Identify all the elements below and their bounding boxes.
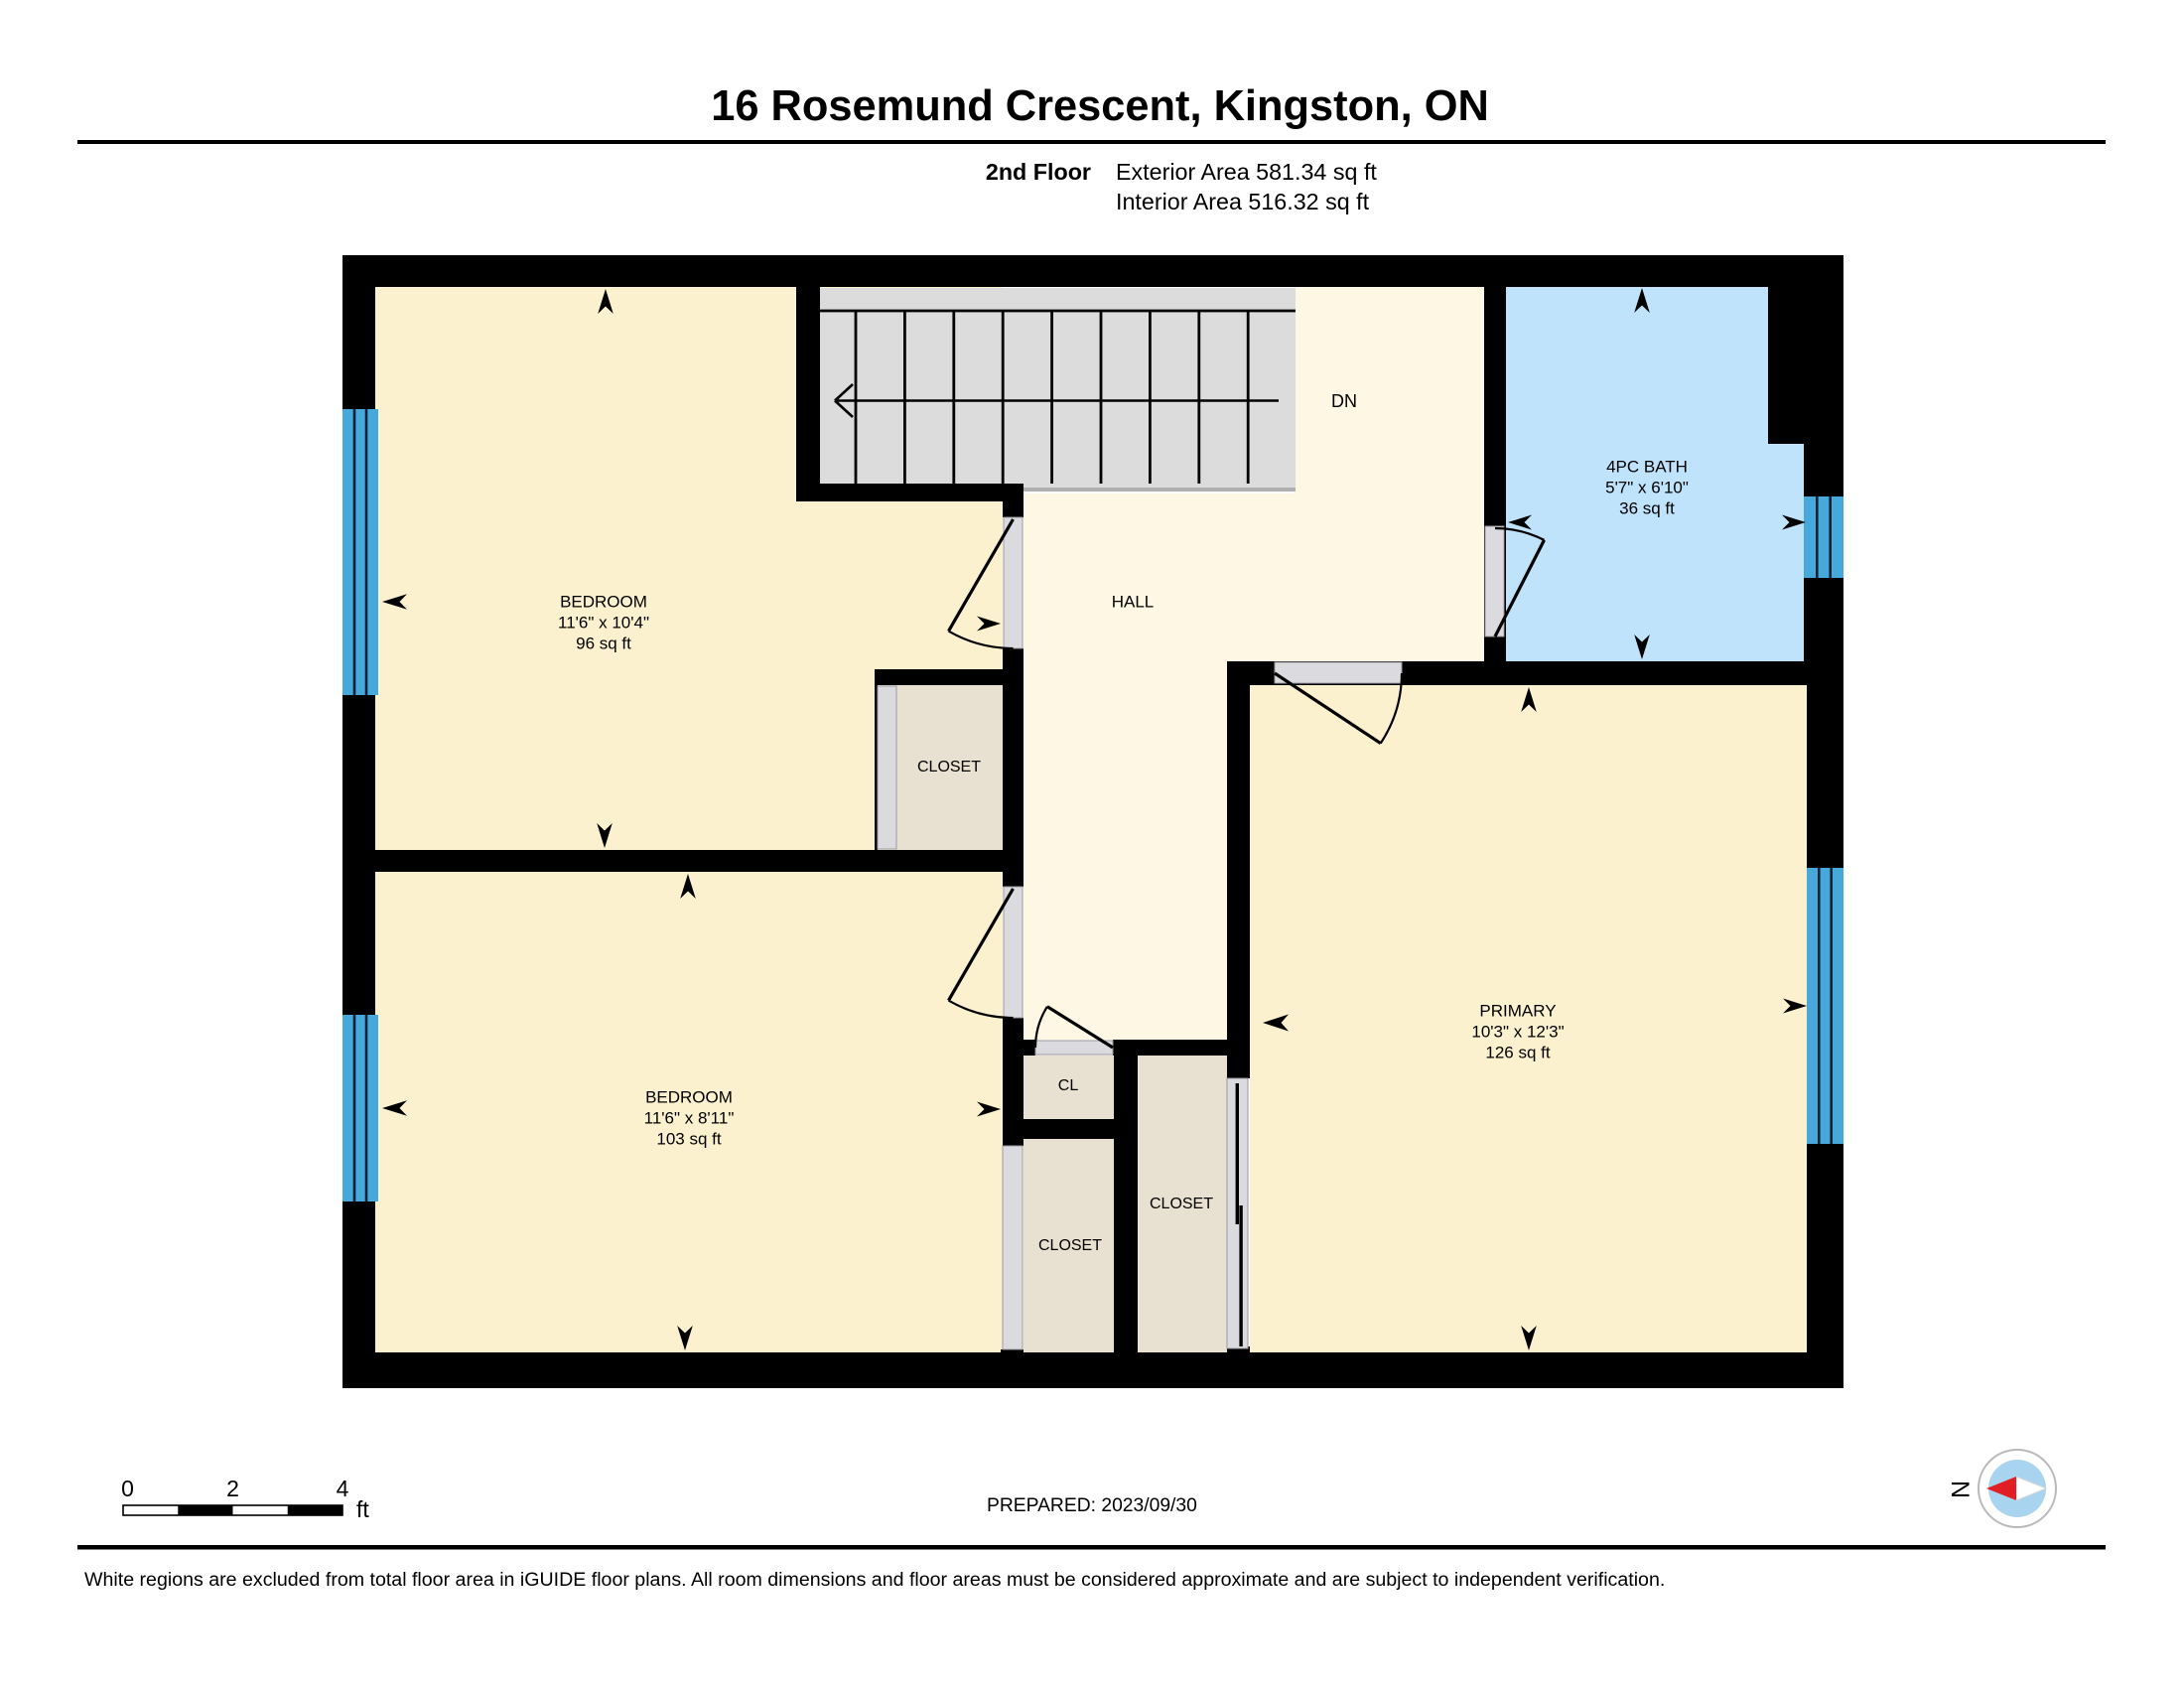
svg-text:CLOSET: CLOSET [1150, 1196, 1213, 1212]
svg-text:CLOSET: CLOSET [1038, 1237, 1102, 1254]
svg-text:CL: CL [1058, 1077, 1079, 1094]
svg-text:PREPARED: 2023/09/30: PREPARED: 2023/09/30 [987, 1495, 1197, 1516]
svg-text:16 Rosemund Crescent, Kingston: 16 Rosemund Crescent, Kingston, ON [711, 82, 1489, 130]
svg-text:2nd Floor: 2nd Floor [986, 159, 1091, 185]
svg-text:DN: DN [1331, 391, 1357, 411]
svg-text:36 sq ft: 36 sq ft [1619, 498, 1675, 517]
svg-text:BEDROOM: BEDROOM [560, 593, 647, 612]
svg-text:96 sq ft: 96 sq ft [576, 634, 631, 652]
svg-text:2: 2 [226, 1476, 239, 1501]
svg-text:126 sq ft: 126 sq ft [1485, 1043, 1550, 1061]
svg-text:PRIMARY: PRIMARY [1479, 1002, 1556, 1021]
svg-text:CLOSET: CLOSET [917, 759, 981, 776]
svg-text:Exterior Area 581.34 sq ft: Exterior Area 581.34 sq ft [1116, 159, 1377, 185]
svg-text:N: N [1948, 1481, 1976, 1498]
svg-text:4PC BATH: 4PC BATH [1606, 458, 1688, 477]
svg-text:5'7" x 6'10": 5'7" x 6'10" [1605, 478, 1689, 496]
svg-text:11'6" x 8'11": 11'6" x 8'11" [644, 1108, 735, 1127]
svg-text:103 sq ft: 103 sq ft [656, 1129, 721, 1148]
svg-text:10'3" x 12'3": 10'3" x 12'3" [1471, 1022, 1564, 1041]
svg-text:Interior Area 516.32 sq ft: Interior Area 516.32 sq ft [1116, 189, 1370, 214]
svg-text:0: 0 [121, 1476, 134, 1501]
svg-text:BEDROOM: BEDROOM [645, 1088, 733, 1107]
svg-text:4: 4 [337, 1476, 349, 1501]
svg-text:White regions are excluded fro: White regions are excluded from total fl… [84, 1569, 1665, 1591]
svg-text:HALL: HALL [1112, 592, 1155, 611]
svg-text:ft: ft [356, 1496, 369, 1522]
svg-text:11'6" x 10'4": 11'6" x 10'4" [558, 613, 649, 632]
